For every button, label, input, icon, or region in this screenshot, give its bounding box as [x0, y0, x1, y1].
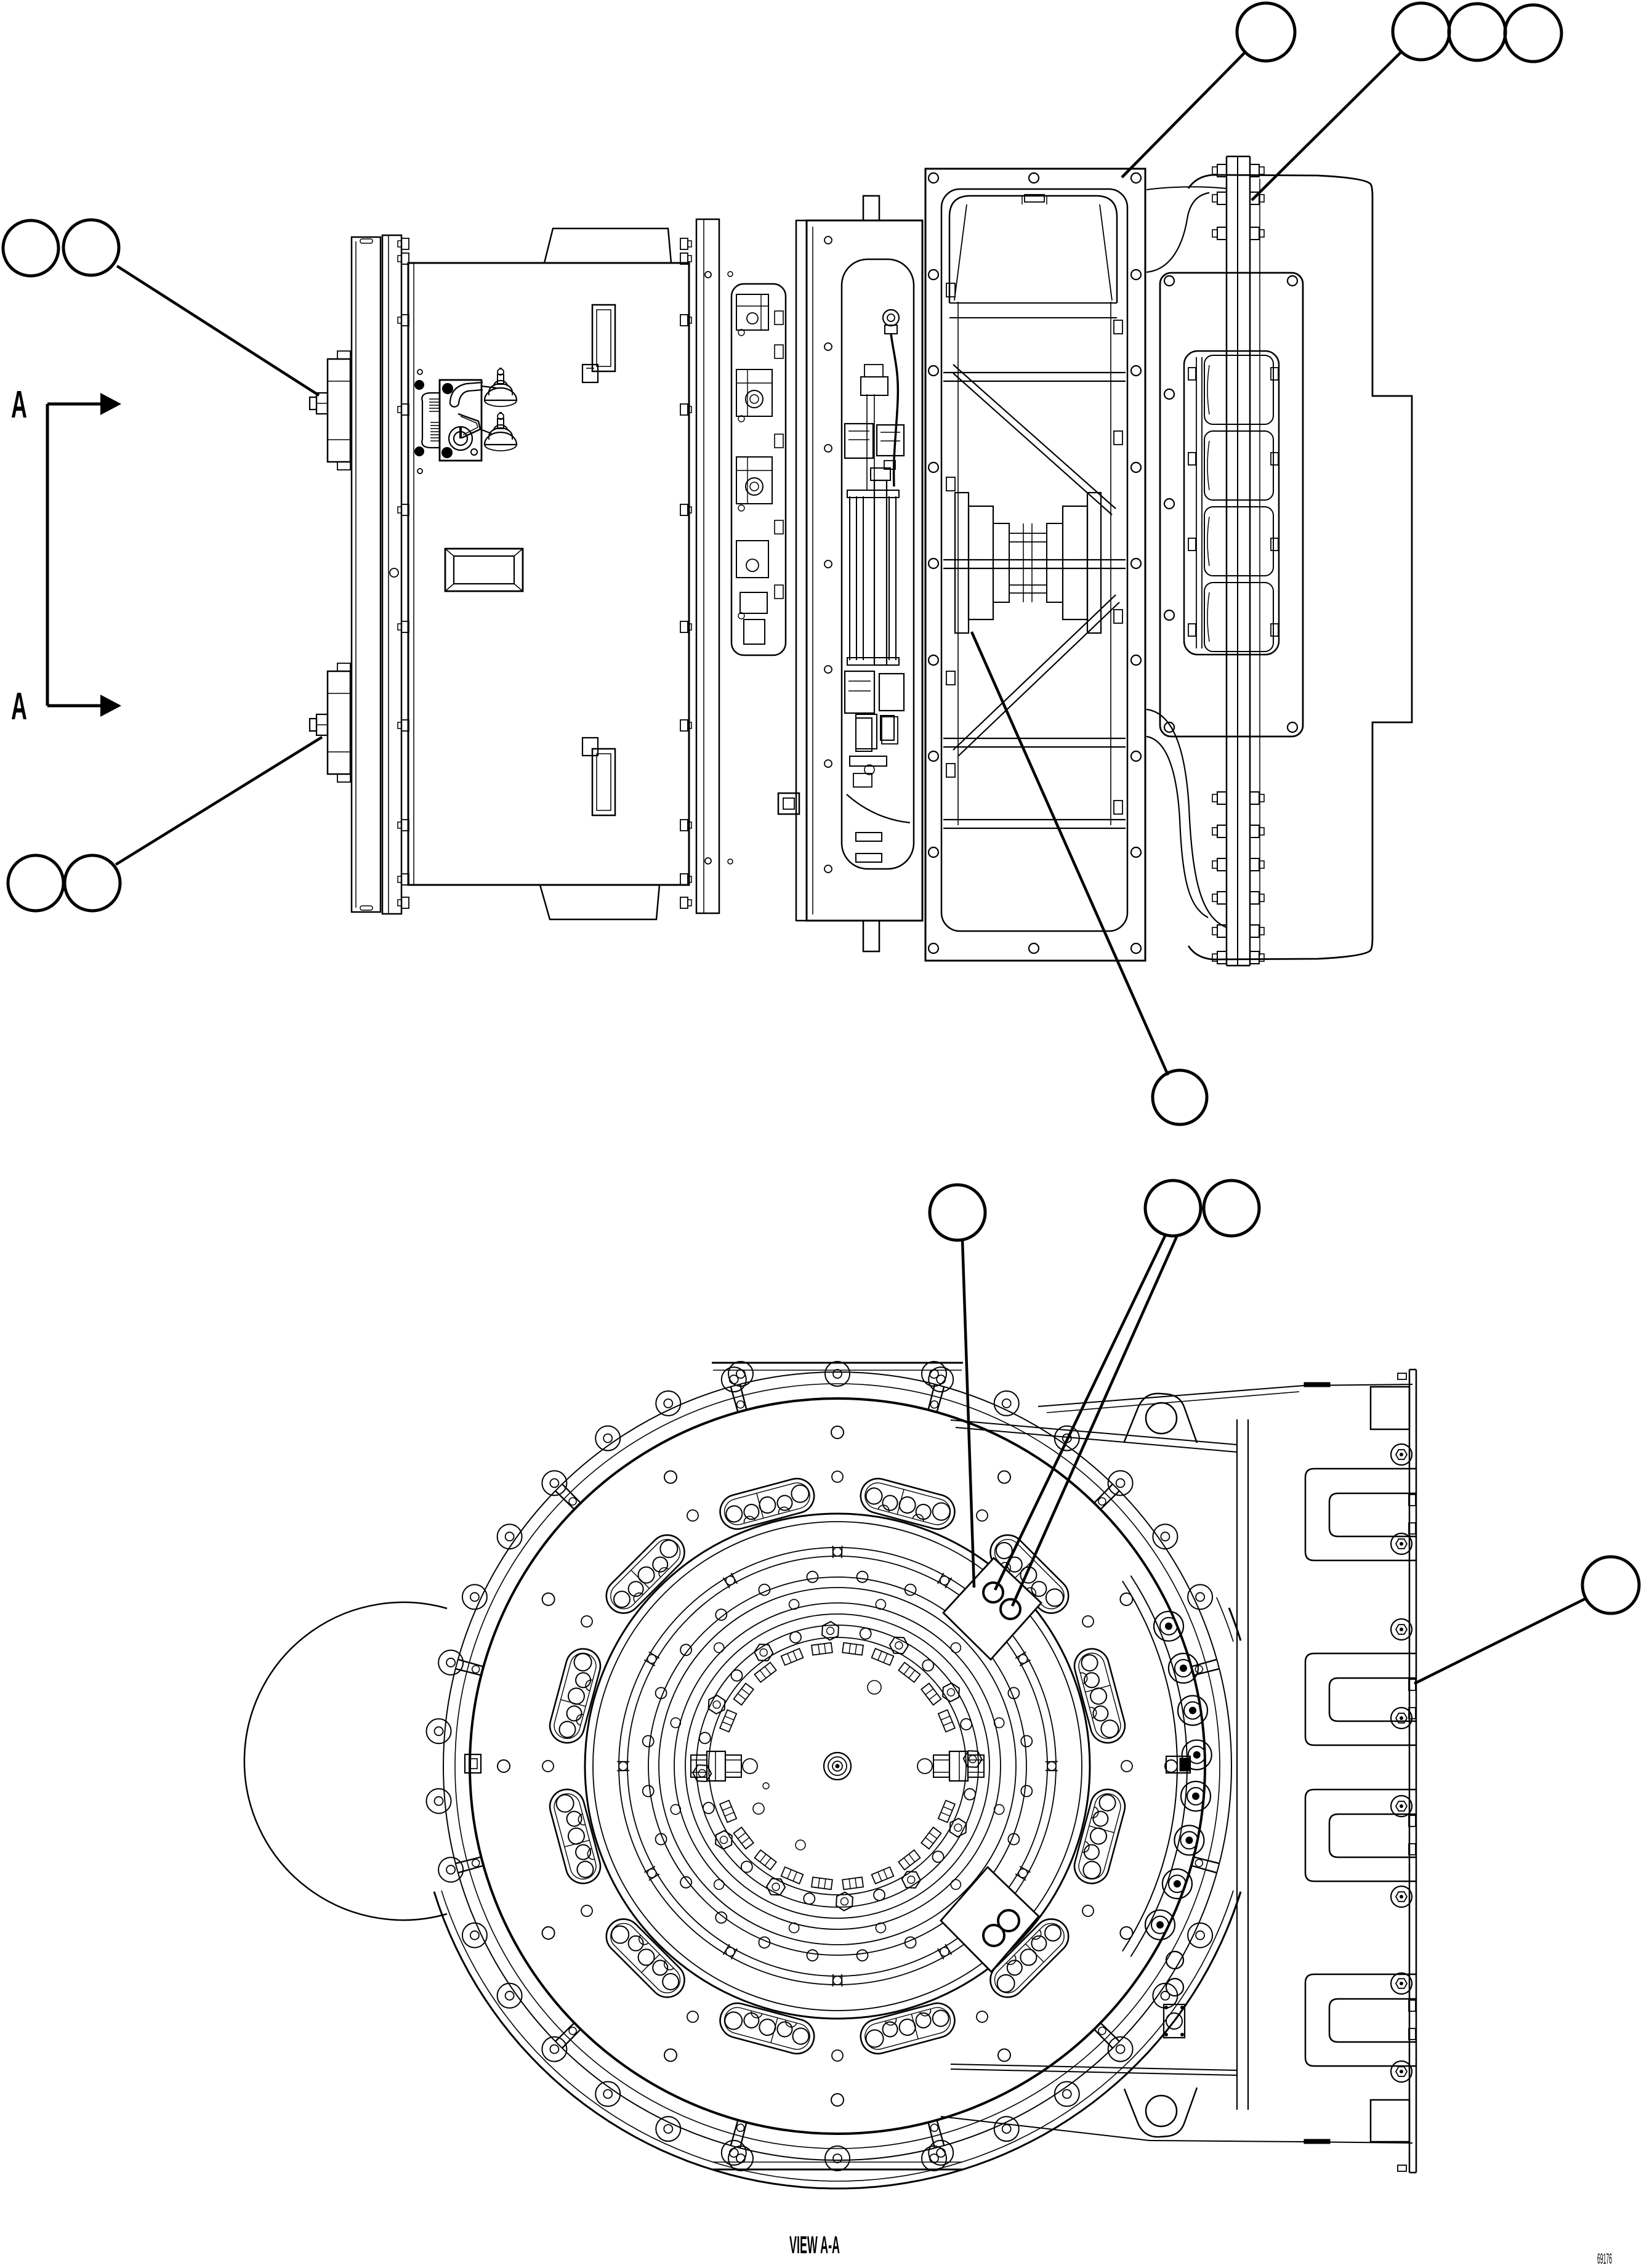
svg-text:A: A [11, 384, 27, 426]
svg-text:VIEW A-A: VIEW A-A [789, 2232, 840, 2259]
svg-text:69176: 69176 [1597, 2251, 1612, 2267]
svg-text:A: A [11, 685, 27, 728]
